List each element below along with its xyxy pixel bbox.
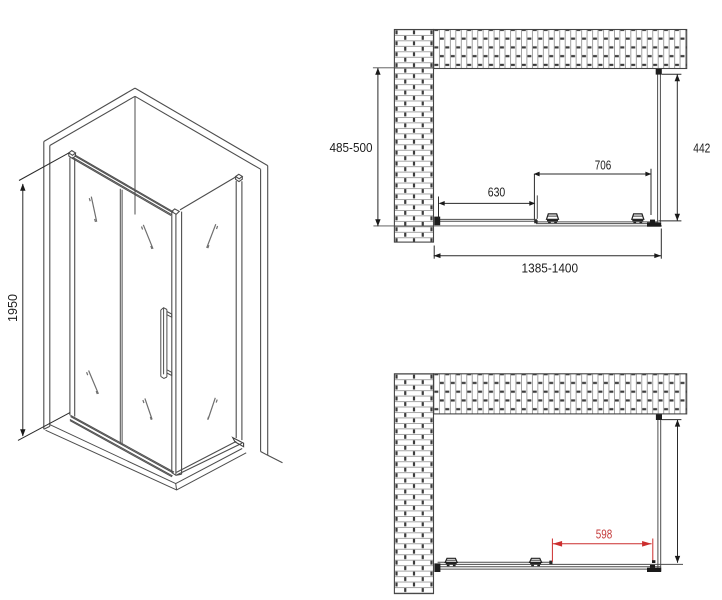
svg-text:485-500: 485-500 — [330, 140, 373, 155]
svg-text:630: 630 — [488, 185, 506, 200]
svg-text:598: 598 — [596, 527, 613, 542]
svg-text:1950: 1950 — [5, 294, 20, 322]
svg-text:442: 442 — [693, 141, 710, 156]
svg-text:1385-1400: 1385-1400 — [522, 261, 579, 276]
svg-text:706: 706 — [595, 158, 612, 173]
